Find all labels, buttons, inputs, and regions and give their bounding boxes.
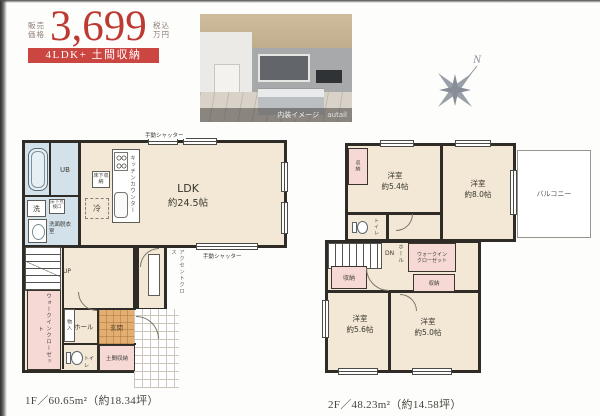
underfloor-storage-label: 床下収納 xyxy=(92,171,110,188)
room-name: 洋室 xyxy=(392,316,464,327)
scan-edge-left xyxy=(0,0,7,416)
window xyxy=(196,243,258,250)
walk-in-closet-2f: ウォークインクローゼット xyxy=(408,243,456,272)
wall xyxy=(440,146,443,240)
window xyxy=(281,162,288,192)
window xyxy=(281,202,288,234)
room-size: 約5.4帖 xyxy=(366,181,424,192)
window xyxy=(183,138,217,145)
toilet-icon xyxy=(357,221,368,234)
room-name: 洋室 xyxy=(448,178,508,189)
stairs-down-label: DN xyxy=(385,250,394,257)
stairs-icon xyxy=(25,247,61,291)
window xyxy=(148,138,178,145)
room-8-0-label: 洋室 約8.0帖 xyxy=(448,178,508,200)
walk-in-closet: ウォークインクローゼット xyxy=(27,290,61,370)
floor1-area-label: 1F／60.65m²（約18.34坪） xyxy=(25,392,159,408)
interior-photo: 内装イメージ autail xyxy=(200,14,352,122)
balcony-label: バルコニー xyxy=(537,189,572,199)
washbasin-icon xyxy=(28,219,47,243)
wall xyxy=(49,143,51,195)
compass-rose-icon: N xyxy=(428,48,486,118)
washing-machine-icon: 洗 xyxy=(27,200,46,217)
ldk-label: LDK 約24.5帖 xyxy=(150,182,226,209)
real-estate-flyer: 販売 価格 3,699 税込 万円 4LDK+ 土間収納 内装イメージ auta… xyxy=(0,0,600,416)
storage-center: 収納 xyxy=(413,274,455,292)
storage-label: 収納 xyxy=(343,273,355,282)
hall-label-2f: ホール xyxy=(396,244,404,268)
wall xyxy=(386,215,389,240)
compass-north-label: N xyxy=(472,52,482,66)
price-value: 3,699 xyxy=(50,4,147,50)
balcony-door xyxy=(510,170,517,215)
price-unit-line1: 税込 xyxy=(153,21,170,30)
photo-tv xyxy=(316,70,342,83)
closet-label: 物入 xyxy=(66,310,73,340)
window xyxy=(380,140,414,147)
room-name: 洋室 xyxy=(329,313,391,324)
ldk-size: 約24.5帖 xyxy=(150,195,226,209)
photo-left-wall xyxy=(200,32,252,94)
stove-icon xyxy=(114,152,128,171)
window xyxy=(322,300,329,338)
ldk-name: LDK xyxy=(150,182,226,195)
price-unit: 税込 万円 xyxy=(153,21,170,39)
wall xyxy=(328,290,478,293)
kitchen-counter-label: キッチンカウンター xyxy=(128,155,136,219)
storage-upper: 収納 xyxy=(348,148,368,185)
price-unit-line2: 万円 xyxy=(153,30,170,39)
price-prefix-line1: 販売 xyxy=(28,21,45,30)
entrance-label: 玄関 xyxy=(110,322,123,332)
wall xyxy=(25,195,78,197)
toilet-label: トイレ xyxy=(84,355,97,369)
price-prefix: 販売 価格 xyxy=(28,21,45,39)
stairs-up-label: UP xyxy=(63,268,71,275)
toilet-icon xyxy=(71,351,83,365)
sink-icon xyxy=(114,192,128,218)
wall xyxy=(78,143,81,245)
photo-caption: 内装イメージ autail xyxy=(200,108,352,122)
floor2-area-label: 2F／48.23m²（約14.58坪） xyxy=(328,396,462,412)
room-name: 洋室 xyxy=(366,170,424,181)
wic-label: ウォークインクローゼット xyxy=(36,291,52,367)
storage-left: 収納 xyxy=(331,266,367,289)
photo-window xyxy=(258,54,310,82)
bathtub-icon xyxy=(28,148,48,191)
storage-label: 収納 xyxy=(355,149,362,182)
toilet-room-2f: トイレ xyxy=(348,215,386,241)
room-5-4-label: 洋室 約5.4帖 xyxy=(366,170,424,192)
toilet-room: トイレ xyxy=(63,345,97,371)
balcony: バルコニー xyxy=(517,150,591,238)
shutter-label-top: 手動シャッター xyxy=(143,131,186,139)
shutter-label-bottom: 手動シャッター xyxy=(203,252,242,260)
wic-label-2f: ウォークインクローゼット xyxy=(416,252,448,264)
window xyxy=(455,140,491,147)
doma-storage: 土間収納 xyxy=(99,345,135,371)
room-size: 約5.0帖 xyxy=(392,327,464,338)
fridge-icon: 冷 xyxy=(85,198,109,219)
room-size: 約8.0帖 xyxy=(448,189,508,200)
photo-watermark: autail xyxy=(327,111,347,119)
hall-label: ホール xyxy=(74,321,94,331)
photo-caption-text: 内装イメージ xyxy=(277,111,319,119)
storage-label: 収納 xyxy=(428,279,439,287)
room-5-6-label: 洋室 約5.6帖 xyxy=(329,313,391,335)
layout-badge: 4LDK+ 土間収納 xyxy=(28,48,159,63)
price-prefix-line2: 価格 xyxy=(28,30,45,39)
doma-storage-label: 土間収納 xyxy=(106,354,128,362)
inspection-hatch: 床下点検口 xyxy=(49,199,65,214)
entrance-area: 玄関 xyxy=(99,310,134,344)
room-size: 約5.6帖 xyxy=(329,324,391,335)
washroom-label: 洗面脱衣室 xyxy=(49,222,73,235)
window xyxy=(338,368,378,375)
unit-bath-label: UB xyxy=(53,166,77,174)
room-5-0-label: 洋室 約5.0帖 xyxy=(392,316,464,338)
toilet-label: トイレ xyxy=(373,218,380,240)
accent-cloth-label: アクセントクロス xyxy=(169,249,185,299)
window xyxy=(412,368,452,375)
